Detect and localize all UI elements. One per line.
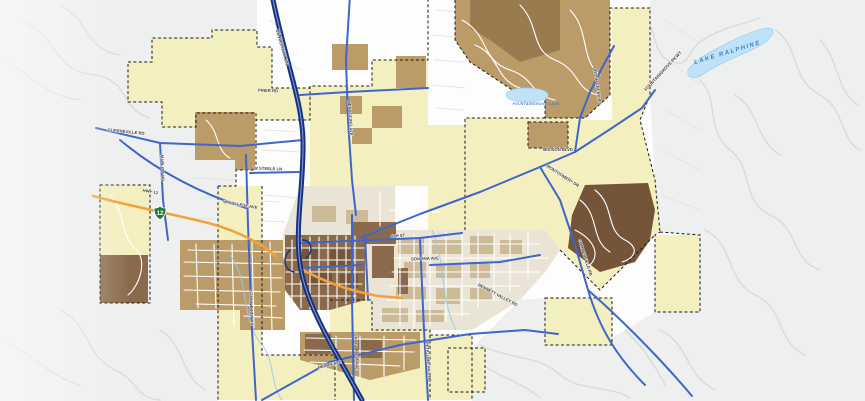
road-label: MISSION BLVD — [543, 147, 573, 152]
road-label: W STEELE LN — [254, 166, 282, 172]
map-viewport[interactable]: 12 US HIGHWAY 101PINER RDGUERNEVILLE RDM… — [0, 0, 865, 401]
road-label: SONOMA AVE — [411, 256, 439, 262]
road-label: PINER RD — [258, 88, 278, 94]
road-label: 4TH ST — [391, 232, 406, 238]
map-canvas[interactable]: 12 US HIGHWAY 101PINER RDGUERNEVILLE RDM… — [0, 0, 865, 401]
road-label: MARLOW RD — [160, 155, 166, 182]
west-fade-overlay — [0, 0, 130, 401]
shield-route-number: 12 — [157, 211, 164, 217]
water-label: FOUNTAINGROVE LAKE — [513, 102, 560, 106]
pond — [506, 88, 548, 102]
